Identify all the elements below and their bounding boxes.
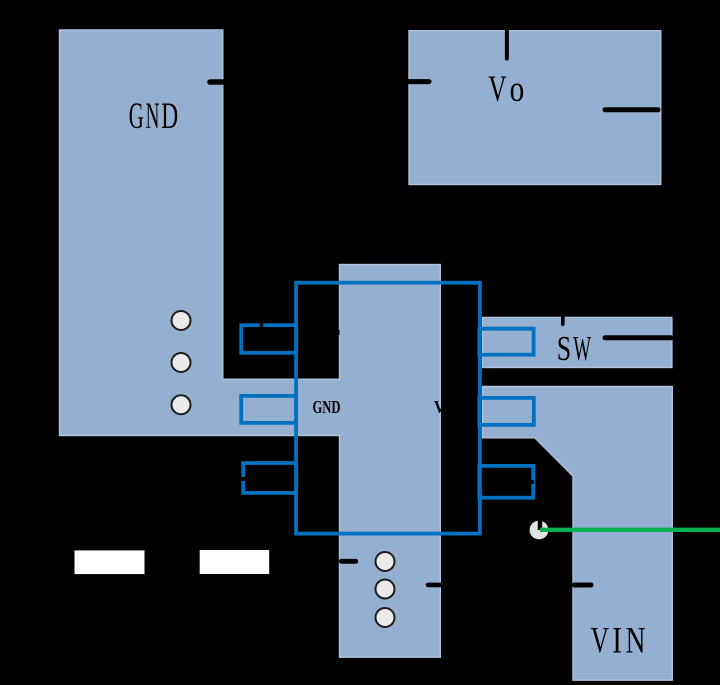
svg-text:I: I — [612, 621, 622, 662]
svg-text:N: N — [626, 621, 646, 662]
svg-text:V: V — [488, 69, 507, 110]
svg-text:o: o — [510, 69, 525, 110]
svg-text:D: D — [161, 96, 178, 137]
svg-text:N: N — [146, 96, 160, 137]
svg-text:S: S — [557, 329, 571, 368]
svg-text:W: W — [573, 329, 591, 368]
svg-text:V: V — [591, 621, 609, 662]
svg-text:G: G — [129, 96, 144, 137]
svg-text:GND: GND — [313, 397, 341, 417]
svg-text:VIN: VIN — [434, 397, 462, 417]
